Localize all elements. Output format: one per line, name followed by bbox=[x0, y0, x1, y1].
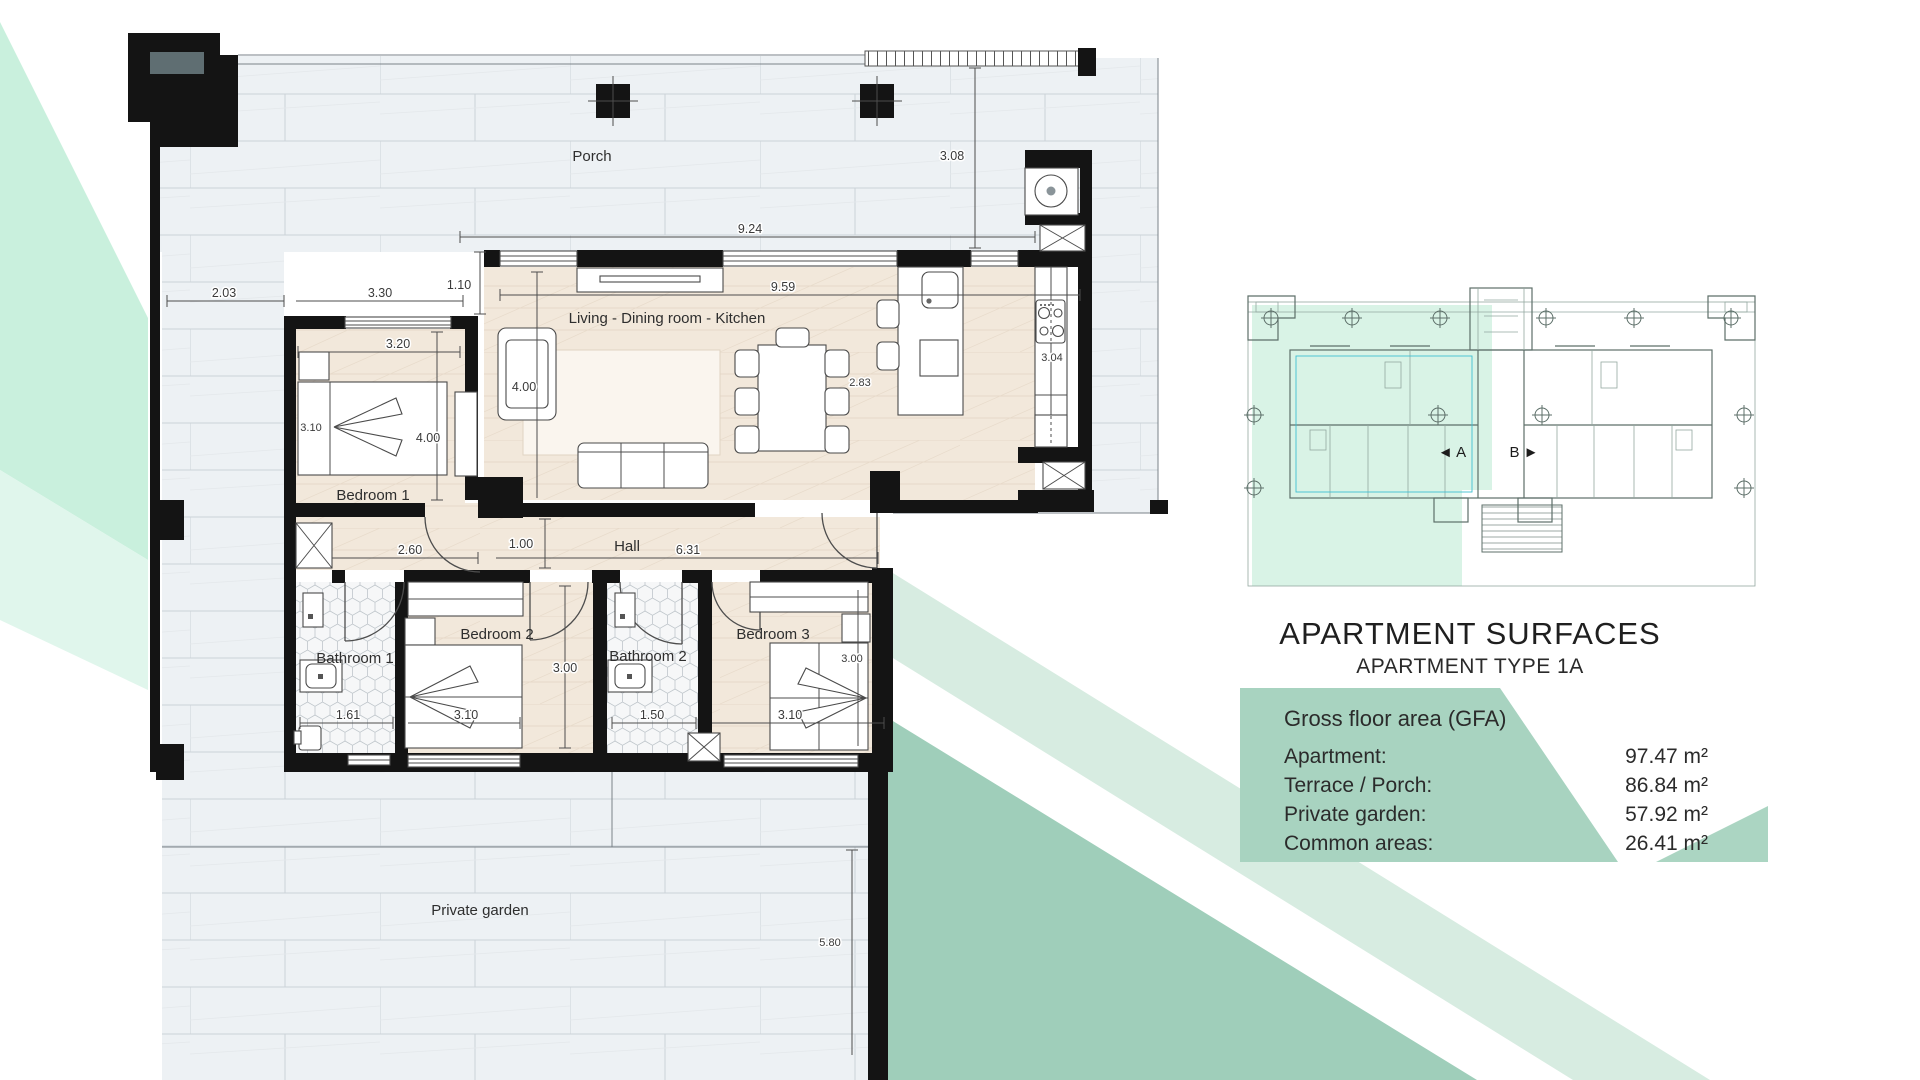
window-living-3 bbox=[971, 251, 1018, 266]
dim-9-59: 9.59 bbox=[771, 280, 795, 294]
floorplan-page: Porch Living - Dining room - Kitchen Bed… bbox=[0, 0, 1920, 1080]
overview-unit-a-label: ◄ A bbox=[1438, 444, 1466, 461]
dim-1-10: 1.10 bbox=[447, 278, 471, 292]
dim-3-10-bedroom2: 3.10 bbox=[454, 708, 478, 722]
dim-3-08: 3.08 bbox=[940, 149, 964, 163]
dim-6-31: 6.31 bbox=[676, 543, 700, 557]
dim-5-80: 5.80 bbox=[819, 937, 840, 949]
gfa-row-value: 86.84 m² bbox=[1625, 774, 1708, 797]
window-bedroom2 bbox=[408, 755, 520, 767]
room-label-bedroom2: Bedroom 2 bbox=[460, 626, 533, 643]
dim-3-20: 3.20 bbox=[386, 337, 410, 351]
dim-9-24: 9.24 bbox=[738, 222, 762, 236]
hall-floor bbox=[296, 517, 880, 570]
overview-unit-a-highlight bbox=[1252, 305, 1492, 490]
dim-2-83: 2.83 bbox=[849, 377, 870, 389]
vent-box-2 bbox=[1043, 462, 1085, 489]
decor-mint-left-top bbox=[0, 22, 148, 560]
gfa-row-label: Private garden: bbox=[1284, 803, 1426, 826]
dim-3-00-bedroom3: 3.00 bbox=[841, 653, 862, 665]
room-label-bedroom3: Bedroom 3 bbox=[736, 626, 809, 643]
window-bathroom1 bbox=[348, 755, 390, 765]
vent-box-1 bbox=[1040, 225, 1085, 251]
room-label-bathroom2: Bathroom 2 bbox=[609, 648, 687, 665]
gfa-row-value: 57.92 m² bbox=[1625, 803, 1708, 826]
dim-2-60: 2.60 bbox=[398, 543, 422, 557]
gfa-row-label: Apartment: bbox=[1284, 745, 1387, 768]
gfa-row-label: Terrace / Porch: bbox=[1284, 774, 1432, 797]
shaft-box bbox=[296, 523, 332, 568]
overview-mini-plan: ◄ A B ► bbox=[1244, 288, 1755, 586]
overview-unit-b-label: B ► bbox=[1509, 444, 1538, 461]
dim-3-00-bedroom2: 3.00 bbox=[553, 661, 577, 675]
page-title: APARTMENT SURFACES bbox=[1279, 616, 1660, 651]
armchair bbox=[498, 328, 556, 420]
dim-1-61: 1.61 bbox=[336, 708, 360, 722]
page-subtitle: APARTMENT TYPE 1A bbox=[1356, 655, 1584, 678]
dim-3-30: 3.30 bbox=[368, 286, 392, 300]
gfa-heading: Gross floor area (GFA) bbox=[1284, 706, 1507, 731]
gfa-panel: Gross floor area (GFA) Apartment: 97.47 … bbox=[1240, 688, 1768, 862]
room-label-hall: Hall bbox=[614, 538, 640, 555]
room-label-bedroom1: Bedroom 1 bbox=[336, 487, 409, 504]
gfa-row-value: 97.47 m² bbox=[1625, 745, 1708, 768]
dim-4-00-bedroom1: 4.00 bbox=[416, 431, 440, 445]
dim-3-10-bedroom3: 3.10 bbox=[778, 708, 802, 722]
window-bedroom1 bbox=[345, 317, 451, 328]
gfa-row-value: 26.41 m² bbox=[1625, 832, 1708, 855]
outdoor-sink bbox=[1025, 168, 1078, 215]
window-living-1 bbox=[500, 251, 577, 266]
dim-2-03: 2.03 bbox=[212, 286, 236, 300]
window-bedroom3 bbox=[724, 755, 858, 767]
gfa-row-label: Common areas: bbox=[1284, 832, 1433, 855]
washer-box bbox=[688, 733, 720, 761]
room-label-garden: Private garden bbox=[431, 902, 529, 919]
dim-3-04: 3.04 bbox=[1041, 352, 1062, 364]
dim-4-00-living: 4.00 bbox=[512, 380, 536, 394]
east-terrace-floor bbox=[1092, 58, 1158, 513]
room-label-bathroom1: Bathroom 1 bbox=[316, 650, 394, 667]
tv-console bbox=[577, 268, 723, 292]
room-label-porch: Porch bbox=[572, 148, 611, 165]
window-living-2 bbox=[723, 251, 897, 266]
dim-1-50: 1.50 bbox=[640, 708, 664, 722]
room-label-living: Living - Dining room - Kitchen bbox=[569, 310, 766, 327]
sofa bbox=[578, 443, 708, 488]
dim-3-10-bedroom1: 3.10 bbox=[300, 422, 321, 434]
dim-1-00: 1.00 bbox=[509, 537, 533, 551]
garden-floor bbox=[162, 772, 868, 1080]
porch-hatch-strip bbox=[865, 51, 1092, 66]
